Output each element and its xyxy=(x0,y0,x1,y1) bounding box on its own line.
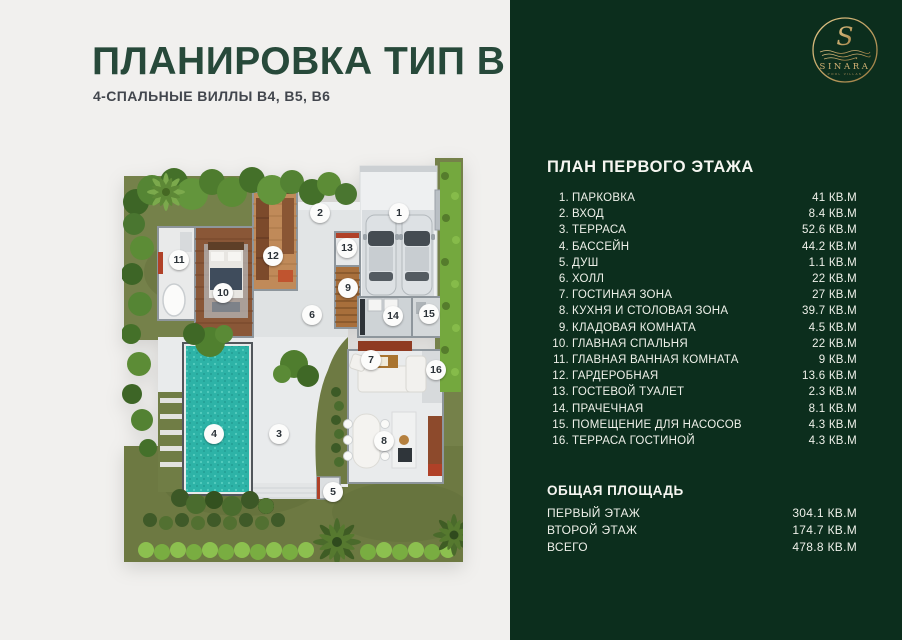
info-panel: S SINARA POOL VILLAS ПЛАН ПЕРВОГО ЭТАЖА … xyxy=(510,0,902,640)
sinara-logo: S SINARA POOL VILLAS xyxy=(810,15,880,85)
room-row: 3.ТЕРРАСА52.6 КВ.М xyxy=(547,222,857,238)
room-row: 12.ГАРДЕРОБНАЯ13.6 КВ.М xyxy=(547,368,857,384)
plan-marker-7: 7 xyxy=(361,350,381,370)
plan-marker-9: 9 xyxy=(338,278,358,298)
floor-list-heading: ПЛАН ПЕРВОГО ЭТАЖА xyxy=(547,158,754,177)
room-row: 2.ВХОД8.4 КВ.М xyxy=(547,206,857,222)
plan-marker-1: 1 xyxy=(389,203,409,223)
plan-marker-14: 14 xyxy=(383,306,403,326)
page: { "colors":{ "page_bg":"#f1f0ee","panel_… xyxy=(0,0,902,640)
room-row: 9.КЛАДОВАЯ КОМНАТА4.5 КВ.М xyxy=(547,320,857,336)
page-subtitle: 4-СПАЛЬНЫЕ ВИЛЛЫ B4, B5, B6 xyxy=(93,88,330,104)
logo-monogram: S xyxy=(836,22,853,51)
room-row: 4.БАССЕЙН44.2 КВ.М xyxy=(547,239,857,255)
logo-tagline: POOL VILLAS xyxy=(828,72,863,76)
page-title: ПЛАНИРОВКА ТИП В xyxy=(92,40,505,84)
total-row: ВТОРОЙ ЭТАЖ174.7 КВ.М xyxy=(547,522,857,539)
room-row: 10.ГЛАВНАЯ СПАЛЬНЯ22 КВ.М xyxy=(547,336,857,352)
floorplan-markers: 12345678910111213141516 xyxy=(122,152,463,562)
logo-brand: SINARA xyxy=(820,62,871,72)
room-row: 16.ТЕРРАСА ГОСТИНОЙ4.3 КВ.М xyxy=(547,433,857,449)
plan-marker-5: 5 xyxy=(323,482,343,502)
room-row: 6.ХОЛЛ22 КВ.М xyxy=(547,271,857,287)
plan-marker-12: 12 xyxy=(263,246,283,266)
plan-marker-13: 13 xyxy=(337,238,357,258)
totals-list: ПЕРВЫЙ ЭТАЖ304.1 КВ.МВТОРОЙ ЭТАЖ174.7 КВ… xyxy=(547,505,857,555)
room-row: 13.ГОСТЕВОЙ ТУАЛЕТ2.3 КВ.М xyxy=(547,384,857,400)
plan-marker-10: 10 xyxy=(213,283,233,303)
plan-marker-4: 4 xyxy=(204,424,224,444)
total-row: ПЕРВЫЙ ЭТАЖ304.1 КВ.М xyxy=(547,505,857,522)
plan-marker-2: 2 xyxy=(310,203,330,223)
floorplan: 12345678910111213141516 xyxy=(122,152,463,562)
room-row: 1.ПАРКОВКА41 КВ.М xyxy=(547,190,857,206)
plan-marker-11: 11 xyxy=(169,250,189,270)
plan-marker-6: 6 xyxy=(302,305,322,325)
room-row: 8.КУХНЯ И СТОЛОВАЯ ЗОНА39.7 КВ.М xyxy=(547,303,857,319)
room-row: 15.ПОМЕЩЕНИЕ ДЛЯ НАСОСОВ4.3 КВ.М xyxy=(547,417,857,433)
room-list: 1.ПАРКОВКА41 КВ.М2.ВХОД8.4 КВ.М3.ТЕРРАСА… xyxy=(547,190,857,449)
plan-marker-15: 15 xyxy=(419,304,439,324)
room-row: 11.ГЛАВНАЯ ВАННАЯ КОМНАТА9 КВ.М xyxy=(547,352,857,368)
room-row: 7.ГОСТИНАЯ ЗОНА27 КВ.М xyxy=(547,287,857,303)
plan-marker-3: 3 xyxy=(269,424,289,444)
total-row: ВСЕГО478.8 КВ.М xyxy=(547,539,857,556)
plan-marker-8: 8 xyxy=(374,431,394,451)
room-row: 14.ПРАЧЕЧНАЯ8.1 КВ.М xyxy=(547,400,857,416)
totals-heading: ОБЩАЯ ПЛОЩАДЬ xyxy=(547,483,684,498)
room-row: 5.ДУШ1.1 КВ.М xyxy=(547,255,857,271)
plan-marker-16: 16 xyxy=(426,360,446,380)
